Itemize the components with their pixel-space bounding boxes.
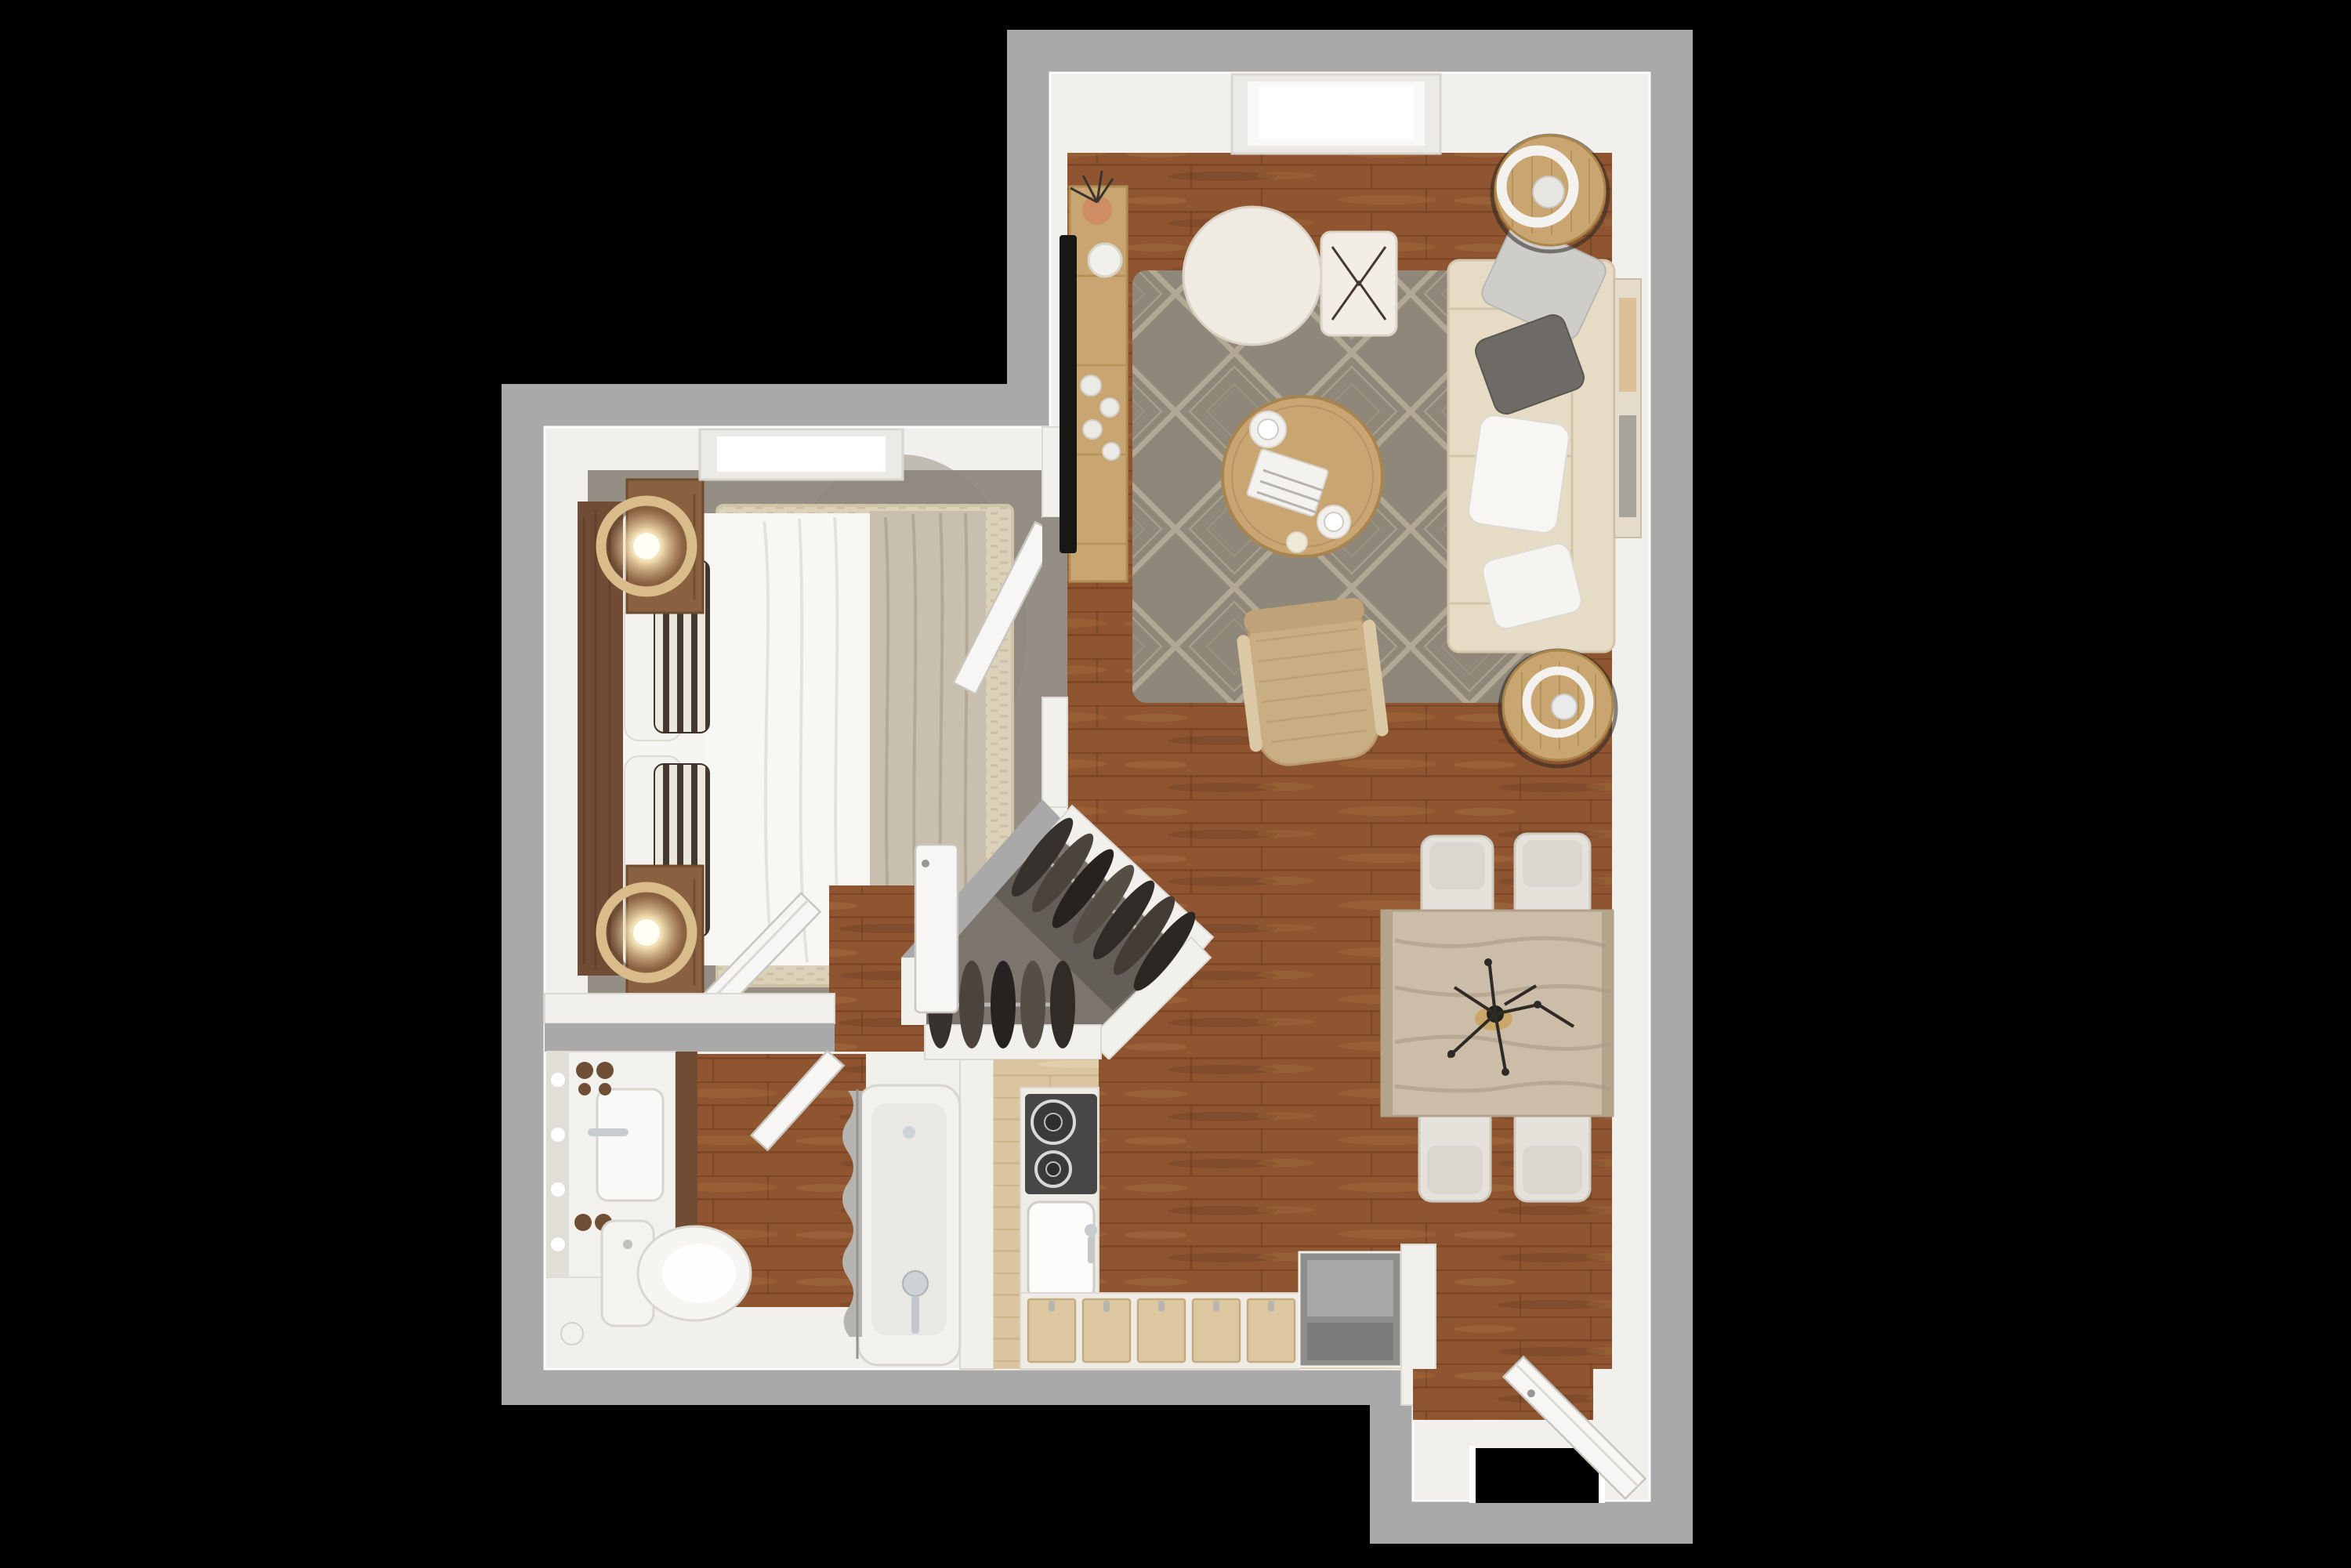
cooktop: [1025, 1094, 1097, 1194]
square-pouf: [1321, 232, 1396, 335]
side-table-top: [1492, 136, 1608, 252]
ring-lamp-top: [601, 501, 692, 592]
toilet-paper-holder: [561, 1323, 583, 1345]
apartment-floorplan: [0, 0, 2351, 1568]
bedroom-bathroom-wall: [545, 1023, 835, 1052]
sofa: [1448, 221, 1614, 652]
kitchen: [994, 1059, 1436, 1405]
lamp-glass-bulb: [1552, 694, 1577, 719]
bathtub: [858, 1085, 960, 1365]
tv-flatscreen: [1060, 235, 1077, 553]
vanity-light: [551, 1237, 565, 1251]
flush-button: [623, 1240, 632, 1249]
lamp-glass-bulb: [1533, 176, 1564, 208]
vanity-light: [551, 1128, 565, 1142]
sofa-pillow-white: [1467, 414, 1570, 535]
kitchen-sink: [1028, 1202, 1097, 1299]
vanity-light: [551, 1182, 565, 1197]
wall-art: [1614, 279, 1641, 538]
ring-lamp-bottom: [601, 887, 692, 978]
white-geo-decor: [1089, 244, 1121, 277]
vanity-light: [551, 1073, 565, 1087]
bathroom-kitchen-wall: [960, 1052, 994, 1369]
closet-panel-door: [915, 845, 958, 1012]
tub-spout: [911, 1296, 919, 1334]
coffee-cup: [1258, 419, 1278, 440]
sink-faucet: [1085, 1224, 1097, 1237]
dining-chair: [1515, 1106, 1590, 1201]
bedroom-bathroom-wall-face: [545, 994, 835, 1023]
dining-table: [1382, 911, 1613, 1116]
closet-door-handle: [922, 860, 929, 867]
accent-chair: [1233, 596, 1391, 770]
tub-drain: [903, 1126, 915, 1139]
bedroom-skylight: [700, 429, 903, 480]
front-door-opening: [1476, 1448, 1599, 1503]
coffee-cup: [1324, 512, 1343, 531]
living-skylight: [1232, 74, 1440, 154]
divider-wall-lower: [1042, 697, 1067, 807]
door-jamb: [1469, 1446, 1476, 1503]
tub-faucet: [903, 1271, 928, 1296]
media-console: [1060, 171, 1127, 581]
gray-appliance: [1299, 1252, 1401, 1367]
vanity-faucet-handle: [588, 1128, 629, 1136]
candle: [1287, 532, 1307, 552]
dining-chair: [1419, 1106, 1491, 1201]
vanity-sink: [597, 1089, 663, 1200]
floorplan-canvas: [0, 0, 2351, 1568]
side-table-bottom: [1500, 650, 1616, 766]
